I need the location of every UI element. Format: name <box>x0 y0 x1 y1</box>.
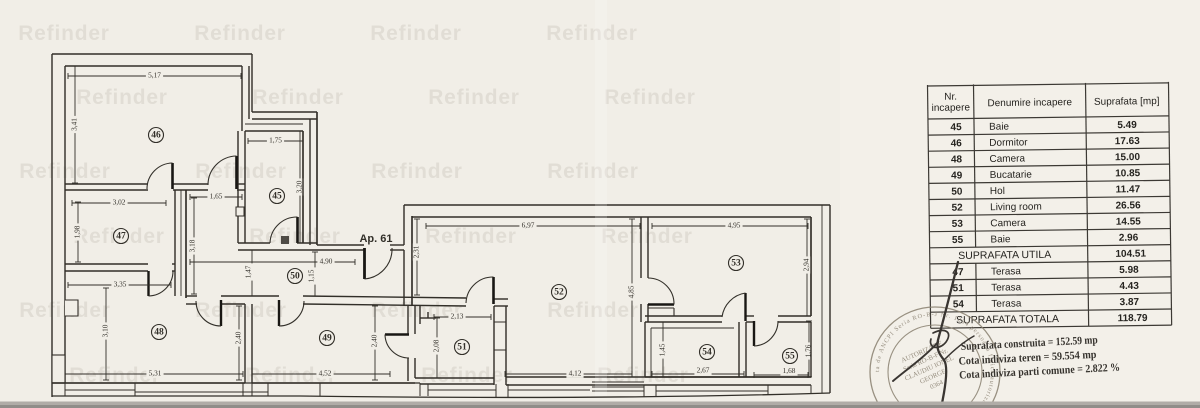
svg-text:Refinder: Refinder <box>194 22 286 45</box>
svg-text:2,13: 2,13 <box>451 312 464 321</box>
svg-text:SUPRAFATA UTILA: SUPRAFATA UTILA <box>958 249 1051 262</box>
svg-text:54: 54 <box>702 348 712 358</box>
svg-text:Nr.: Nr. <box>944 92 957 103</box>
svg-text:53: 53 <box>952 219 964 230</box>
svg-text:2.96: 2.96 <box>1119 233 1139 244</box>
svg-text:6,97: 6,97 <box>522 221 535 230</box>
svg-text:Camera: Camera <box>990 218 1026 229</box>
svg-text:5.98: 5.98 <box>1119 265 1139 276</box>
svg-text:incapere: incapere <box>932 102 971 114</box>
svg-text:Refinder: Refinder <box>371 160 463 183</box>
svg-text:Living room: Living room <box>990 202 1042 214</box>
svg-text:Refinder: Refinder <box>547 299 639 322</box>
svg-text:Refinder: Refinder <box>604 86 696 109</box>
svg-text:10.85: 10.85 <box>1115 168 1141 179</box>
svg-text:2,31: 2,31 <box>412 245 421 258</box>
svg-text:Ap. 61: Ap. 61 <box>359 233 392 245</box>
svg-text:1,68: 1,68 <box>783 366 796 375</box>
svg-text:Refinder: Refinder <box>425 225 517 248</box>
svg-text:104.51: 104.51 <box>1115 249 1146 260</box>
svg-text:4.43: 4.43 <box>1119 281 1139 292</box>
svg-text:Refinder: Refinder <box>428 86 520 109</box>
svg-text:53: 53 <box>731 259 741 269</box>
svg-text:15.00: 15.00 <box>1115 152 1141 163</box>
svg-text:Terasa: Terasa <box>991 282 1022 293</box>
svg-text:3,35: 3,35 <box>114 280 127 289</box>
svg-text:Baie: Baie <box>989 121 1010 132</box>
svg-text:51: 51 <box>953 283 965 294</box>
svg-text:2,40: 2,40 <box>370 334 379 347</box>
svg-text:Dormitor: Dormitor <box>989 137 1028 149</box>
svg-text:3.87: 3.87 <box>1120 297 1140 308</box>
svg-text:2,40: 2,40 <box>234 331 243 344</box>
svg-text:4,90: 4,90 <box>320 257 333 266</box>
svg-text:1,15: 1,15 <box>307 269 316 282</box>
svg-text:Denumire incapere: Denumire incapere <box>987 97 1072 109</box>
svg-text:26.56: 26.56 <box>1116 200 1142 211</box>
svg-text:Camera: Camera <box>989 153 1025 164</box>
svg-text:51: 51 <box>457 343 467 353</box>
svg-text:Refinder: Refinder <box>597 364 689 387</box>
svg-text:50: 50 <box>290 272 300 282</box>
svg-text:4,95: 4,95 <box>728 221 741 230</box>
svg-text:1,65: 1,65 <box>210 192 223 201</box>
svg-text:4,12: 4,12 <box>569 369 582 378</box>
svg-text:Refinder: Refinder <box>546 22 638 45</box>
svg-text:4,52: 4,52 <box>319 369 332 378</box>
svg-text:1,47: 1,47 <box>244 265 253 278</box>
svg-text:11.47: 11.47 <box>1116 184 1141 195</box>
svg-text:Suprafata [mp]: Suprafata [mp] <box>1094 96 1160 108</box>
svg-text:48: 48 <box>154 328 164 338</box>
svg-text:2,67: 2,67 <box>697 366 710 375</box>
svg-text:Refinder: Refinder <box>195 299 287 322</box>
svg-text:49: 49 <box>322 334 332 344</box>
svg-text:14.55: 14.55 <box>1116 216 1142 227</box>
svg-text:Hol: Hol <box>990 186 1005 197</box>
svg-text:49: 49 <box>951 170 963 181</box>
svg-text:Refinder: Refinder <box>547 160 639 183</box>
svg-text:46: 46 <box>951 138 963 149</box>
svg-text:Terasa: Terasa <box>991 298 1022 309</box>
svg-text:2,08: 2,08 <box>432 339 441 352</box>
svg-text:Bucatarie: Bucatarie <box>990 169 1033 181</box>
svg-text:45: 45 <box>272 192 282 202</box>
svg-text:Terasa: Terasa <box>991 266 1022 277</box>
svg-text:1,45: 1,45 <box>658 343 667 356</box>
svg-text:55: 55 <box>952 235 964 246</box>
svg-text:48: 48 <box>951 154 963 165</box>
svg-text:54: 54 <box>953 299 965 310</box>
svg-text:2,94: 2,94 <box>802 258 811 271</box>
svg-text:55: 55 <box>785 352 795 362</box>
svg-text:3,02: 3,02 <box>113 198 126 207</box>
svg-text:Refinder: Refinder <box>601 225 693 248</box>
svg-text:3,41: 3,41 <box>70 118 79 131</box>
svg-text:Refinder: Refinder <box>370 22 462 45</box>
svg-text:52: 52 <box>951 203 963 214</box>
svg-text:5.49: 5.49 <box>1117 120 1137 131</box>
svg-text:1,75: 1,75 <box>269 136 282 145</box>
svg-text:50: 50 <box>951 187 963 198</box>
svg-text:118.79: 118.79 <box>1117 313 1148 324</box>
svg-text:Refinder: Refinder <box>76 86 168 109</box>
svg-text:46: 46 <box>151 131 161 141</box>
svg-text:Refinder: Refinder <box>252 86 344 109</box>
svg-text:3,18: 3,18 <box>188 239 197 252</box>
svg-text:5,17: 5,17 <box>148 71 161 80</box>
svg-text:Baie: Baie <box>990 234 1011 245</box>
svg-text:1,98: 1,98 <box>73 225 82 238</box>
svg-text:52: 52 <box>554 288 564 298</box>
svg-text:47: 47 <box>116 232 126 242</box>
svg-text:45: 45 <box>950 122 962 133</box>
svg-text:17.63: 17.63 <box>1115 136 1141 147</box>
svg-text:3,10: 3,10 <box>101 324 110 337</box>
svg-text:4,85: 4,85 <box>627 285 636 298</box>
svg-text:5,31: 5,31 <box>149 369 162 378</box>
svg-text:Refinder: Refinder <box>18 22 110 45</box>
